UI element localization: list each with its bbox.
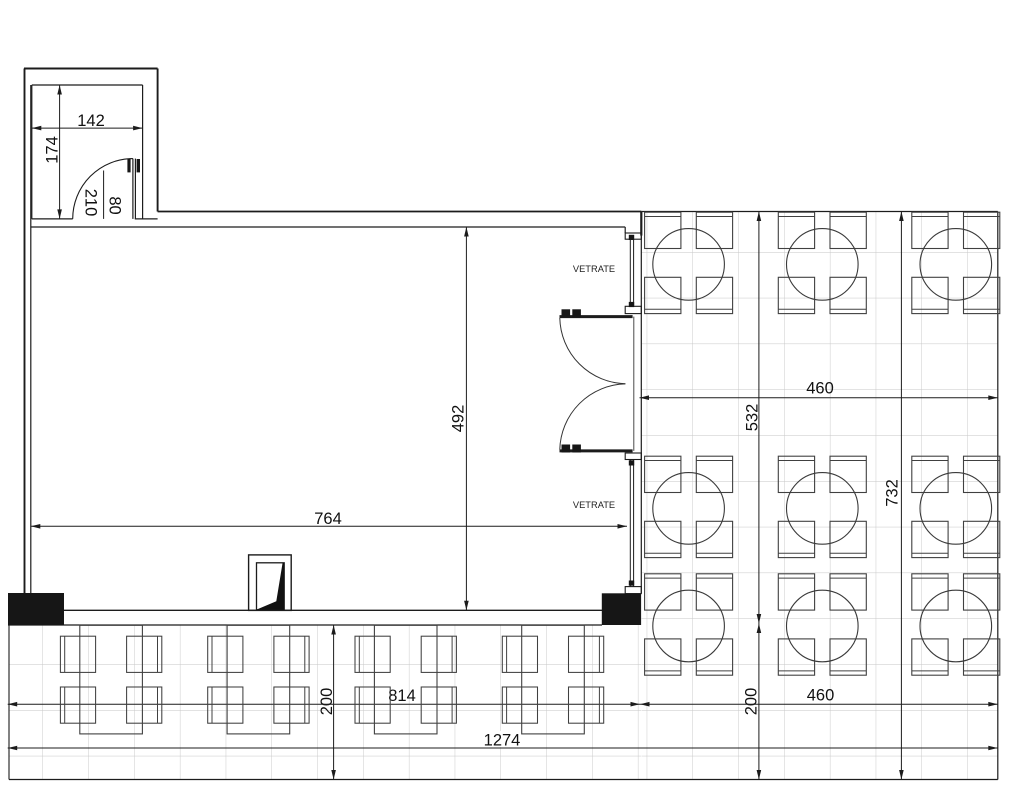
svg-text:174: 174	[44, 136, 62, 164]
svg-text:142: 142	[77, 112, 105, 130]
svg-text:VETRATE: VETRATE	[573, 500, 615, 510]
svg-text:814: 814	[388, 687, 416, 705]
svg-text:VETRATE: VETRATE	[573, 264, 615, 274]
svg-text:532: 532	[743, 404, 761, 432]
svg-text:200: 200	[743, 688, 761, 716]
svg-text:764: 764	[314, 510, 342, 528]
svg-text:460: 460	[807, 687, 835, 705]
svg-text:210: 210	[82, 189, 100, 217]
svg-text:1274: 1274	[484, 732, 521, 750]
svg-text:492: 492	[450, 405, 468, 433]
svg-text:460: 460	[806, 380, 834, 398]
svg-text:200: 200	[318, 688, 336, 716]
svg-text:732: 732	[883, 479, 901, 507]
svg-text:80: 80	[106, 196, 124, 214]
